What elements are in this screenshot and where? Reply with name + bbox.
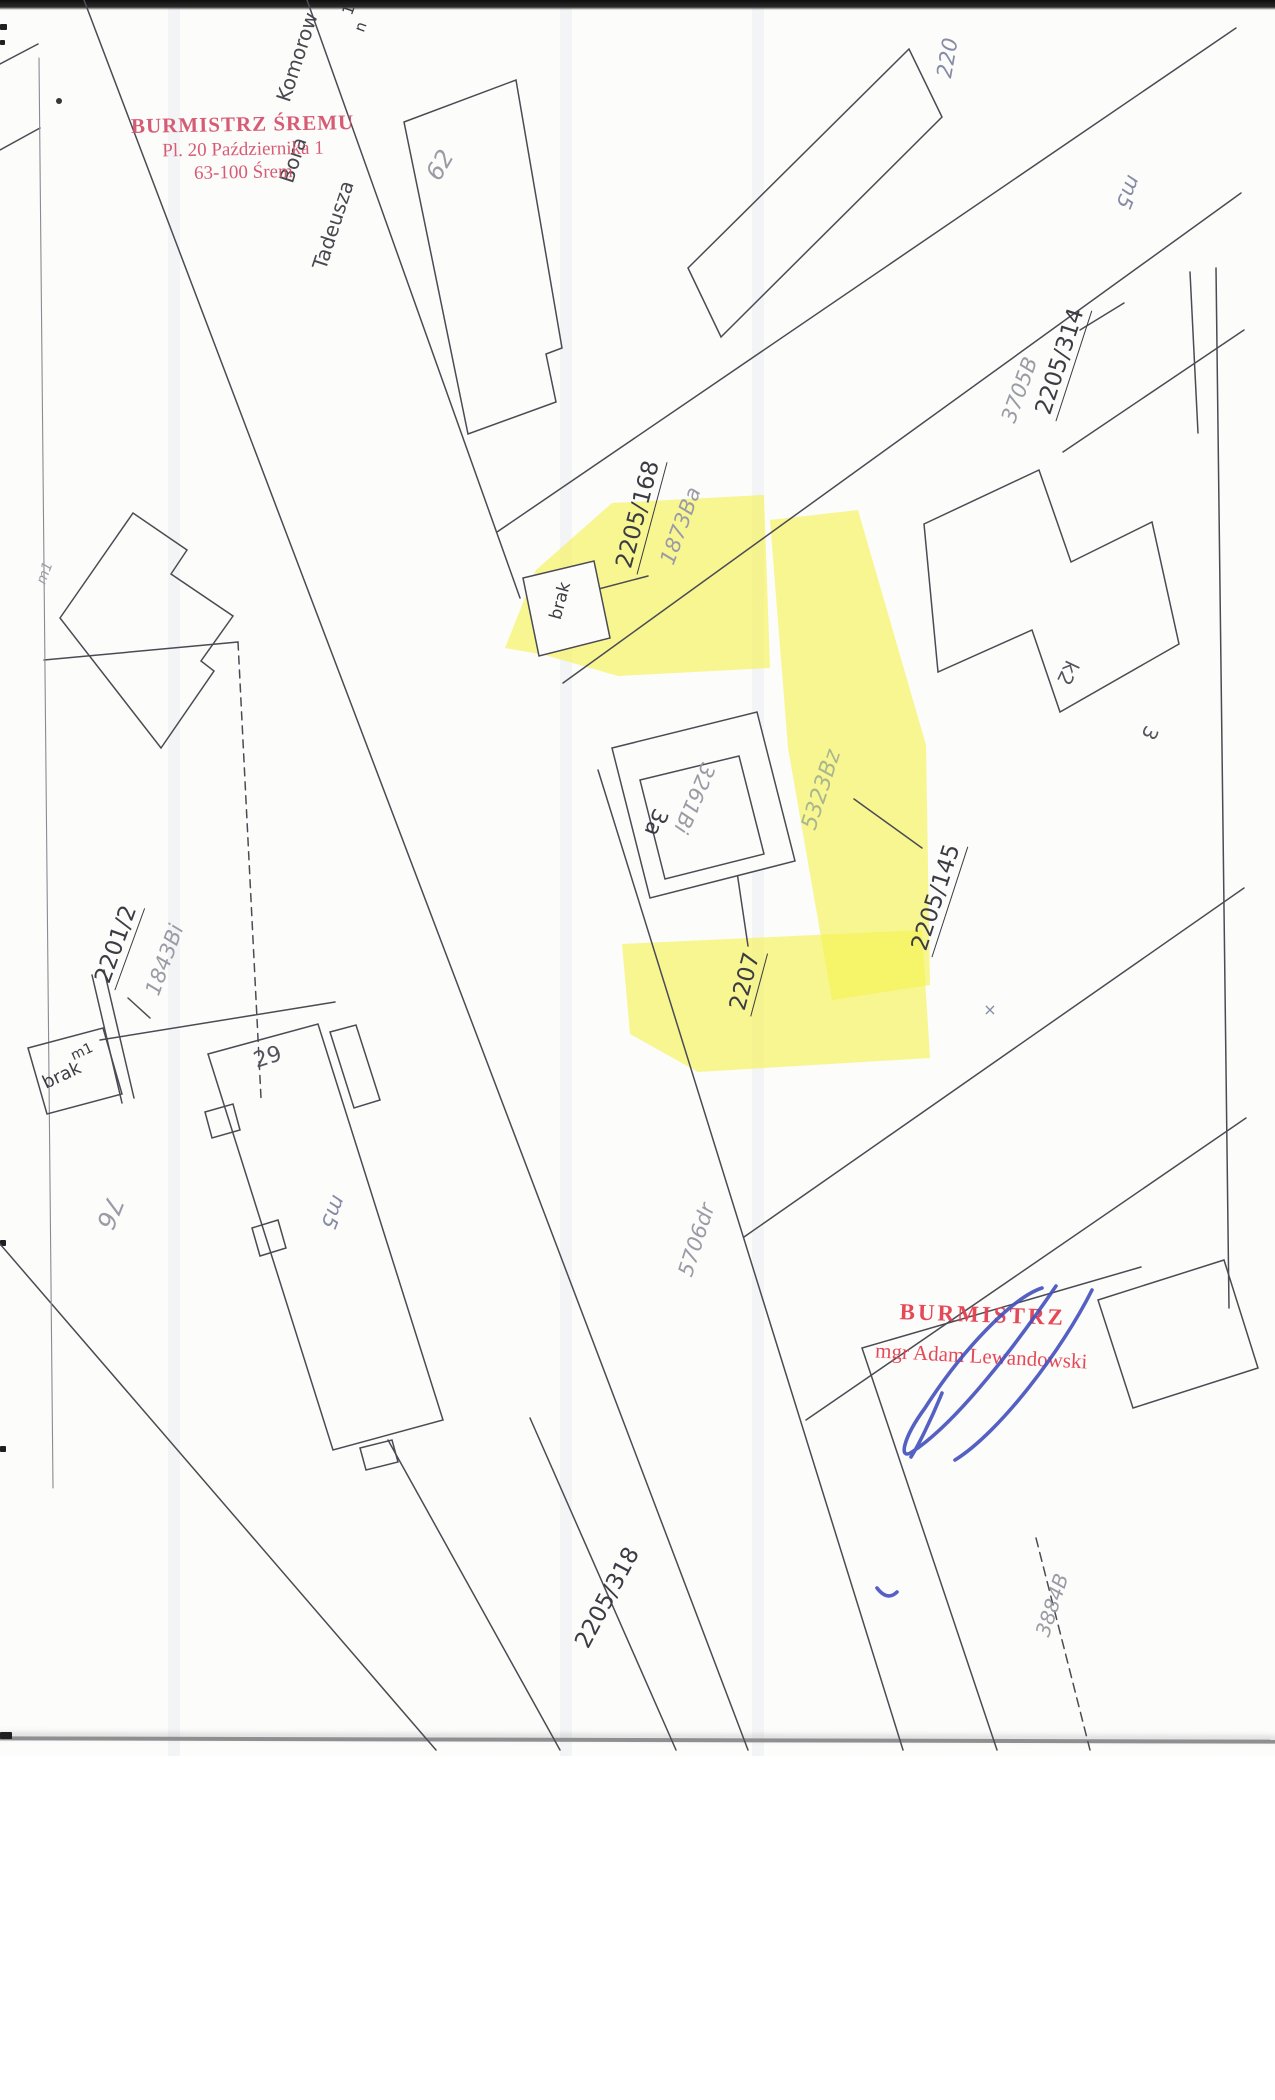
parcel-2205-145: 2205/145 (908, 839, 969, 958)
stamp-burmistrz-sremu: BURMISTRZ ŚREMU Pl. 20 Października 1 63… (99, 110, 386, 187)
building-3261Bi: 3261Bi (670, 760, 718, 836)
building-m5-ne: m5 (1112, 172, 1144, 211)
street-tadeusza: Tadeusza (309, 178, 356, 272)
building-m1-nw: m1 (35, 560, 56, 586)
parcel-5706dr: 5706dr (675, 1201, 718, 1279)
street-komorow: Komorow (273, 10, 321, 104)
parcel-5323Bz: 5323Bz (799, 747, 845, 832)
parcel-220: 220 (934, 36, 962, 79)
building-29: 29 (251, 1043, 284, 1073)
parcel-2205-318: 2205/318 (572, 1544, 644, 1652)
parcel-3705B: 3705B (999, 355, 1042, 426)
map-labels: 1nKomorowBoraTadeusza62m52203705B2205/31… (0, 0, 1275, 1756)
cross-mark: × (983, 1002, 996, 1018)
parcel-2201-2: 2201/2 (91, 900, 145, 991)
parcel-2207: 2207 (726, 947, 768, 1016)
parcel-3884B: 3884B (1033, 1571, 1072, 1639)
parcel-76: 76 (92, 1194, 127, 1233)
building-brak-n: brak (548, 580, 574, 621)
building-brak-sw: brak (40, 1059, 84, 1092)
building-3a: 3a (640, 805, 671, 839)
stamp-burmistrz-signature: BURMISTRZ mgr Adam Lewandowski (821, 1296, 1143, 1374)
building-3: 3 (1138, 723, 1162, 743)
scanned-cadastral-map: 1nKomorowBoraTadeusza62m52203705B2205/31… (0, 0, 1275, 2100)
stamp-top-line1: BURMISTRZ ŚREMU (99, 110, 385, 140)
parcel-1843Bi: 1843Bi (143, 922, 188, 998)
edge-label-n: n (352, 20, 369, 34)
building-62: 62 (422, 146, 458, 184)
building-m5-w: m5 (317, 1192, 349, 1231)
parcel-1873Ba: 1873Ba (657, 484, 704, 567)
building-k2: k2 (1054, 658, 1082, 688)
edge-label-1: 1 (340, 3, 357, 17)
